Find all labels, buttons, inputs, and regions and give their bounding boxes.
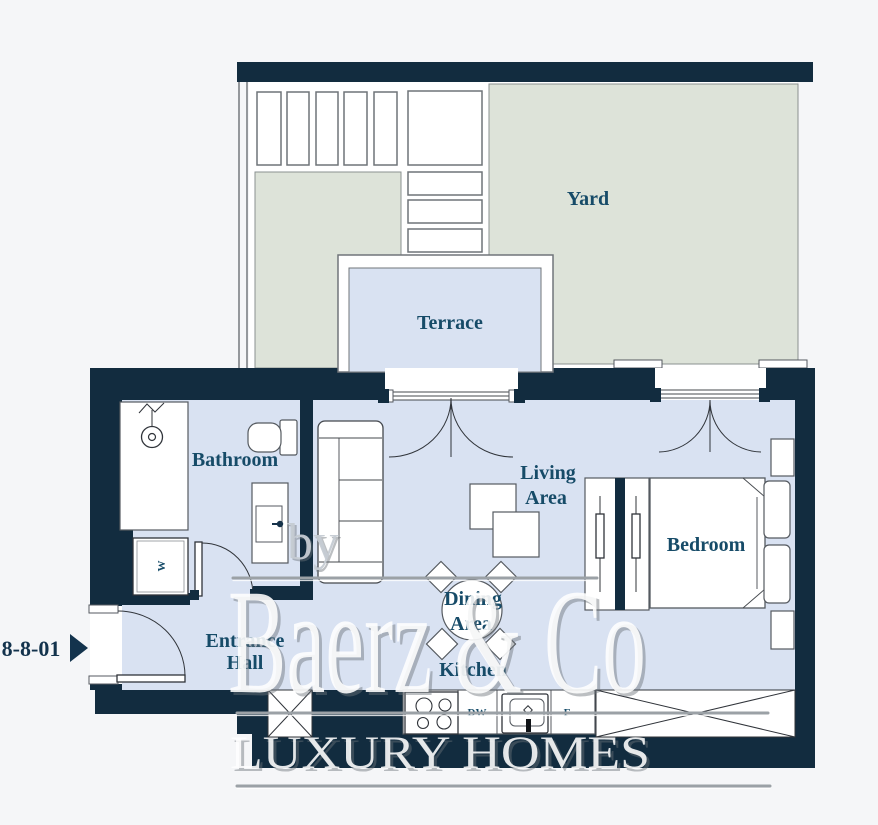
deck-slat (374, 92, 397, 165)
bedroom-door-opening (655, 368, 766, 400)
nightstand (771, 611, 794, 649)
nightstand (771, 439, 794, 476)
room-label-terrace: Terrace (417, 312, 483, 334)
deck-step (408, 200, 482, 223)
tagline-watermark: LUXURY HOMES (230, 727, 650, 779)
deck-step (408, 172, 482, 195)
room-label-living-1: Living (520, 462, 576, 484)
entrance-door-opening (90, 606, 122, 684)
room-label-living-2: Area (525, 487, 567, 509)
room-label-yard: Yard (567, 188, 609, 210)
pillow (764, 545, 790, 603)
unit-number: 8-8-01 (2, 636, 61, 661)
deck-slat (316, 92, 338, 165)
pillow (764, 481, 790, 538)
floor-plan: W (0, 0, 878, 825)
wall-bottom-entrance (95, 690, 237, 714)
window-sill (759, 360, 807, 368)
door-leaf (117, 675, 185, 682)
exterior-wall-top (237, 62, 813, 82)
door-leaf (195, 542, 202, 596)
deck-slat (257, 92, 281, 165)
shower (120, 402, 188, 530)
room-label-bathroom: Bathroom (192, 449, 279, 471)
window-sill (614, 360, 662, 368)
deck-step (408, 229, 482, 252)
terrace-door-opening (385, 368, 518, 400)
brand-watermark: Baerz & Co (228, 559, 646, 725)
washing-machine: W (133, 538, 188, 595)
deck-slat (344, 92, 367, 165)
washer-label: W (156, 561, 168, 572)
deck-panel (408, 91, 482, 165)
vanity-sink (252, 483, 288, 563)
floor-plan-drawing: W (0, 0, 878, 825)
room-label-bedroom: Bedroom (667, 534, 746, 556)
unit-arrow-icon (70, 634, 88, 662)
deck-slat (287, 92, 309, 165)
coffee-table (493, 512, 539, 557)
